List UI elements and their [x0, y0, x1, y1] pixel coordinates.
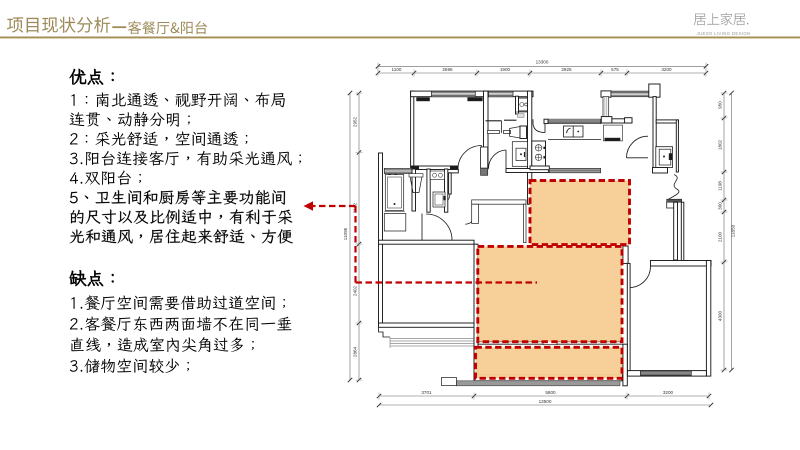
svg-text:300: 300 [718, 202, 723, 210]
svg-text:950: 950 [718, 101, 723, 109]
svg-text:JUESO LIVING DESIGN: JUESO LIVING DESIGN [697, 31, 751, 36]
svg-text:5800: 5800 [545, 390, 556, 395]
svg-text:4300: 4300 [718, 310, 723, 321]
svg-text:1198: 1198 [718, 181, 723, 191]
svg-text:3701: 3701 [421, 390, 432, 395]
svg-text:1900: 1900 [500, 67, 511, 72]
svg-text:2925: 2925 [561, 67, 572, 72]
svg-text:11095: 11095 [343, 227, 348, 240]
svg-text:1100: 1100 [392, 67, 402, 72]
svg-text:2100: 2100 [718, 231, 723, 242]
svg-text:3200: 3200 [663, 390, 674, 395]
svg-text:13500: 13500 [539, 399, 552, 404]
svg-text:2864: 2864 [353, 346, 358, 357]
svg-text:2402: 2402 [353, 285, 358, 296]
svg-text:575: 575 [611, 67, 619, 72]
svg-text:13300: 13300 [536, 60, 549, 65]
svg-text:2952: 2952 [353, 116, 358, 127]
svg-text:1802: 1802 [718, 139, 723, 150]
svg-text:11850: 11850 [731, 224, 736, 237]
svg-text:2696: 2696 [442, 67, 453, 72]
svg-text:3200: 3200 [661, 67, 672, 72]
